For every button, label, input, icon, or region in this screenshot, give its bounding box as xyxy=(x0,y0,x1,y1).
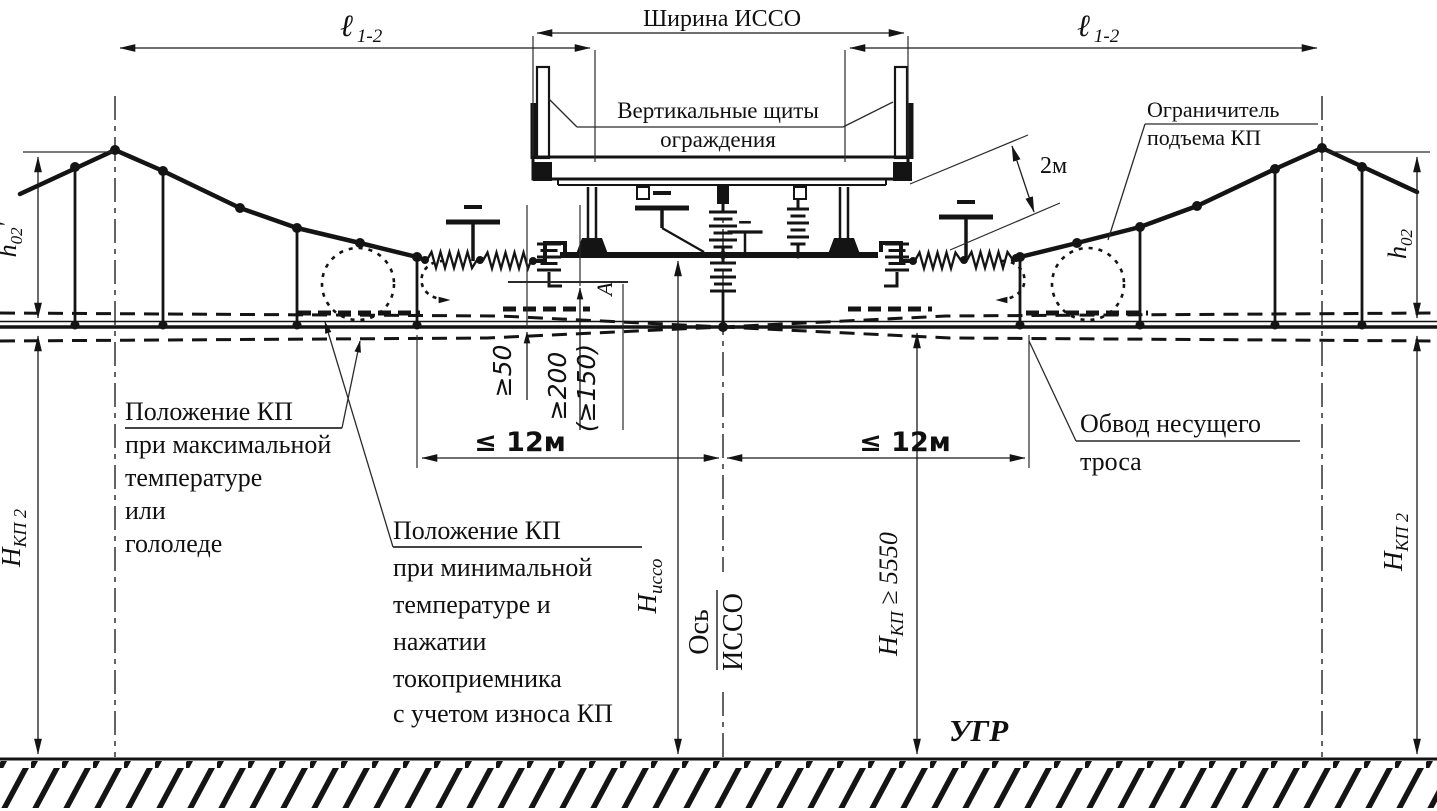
ground-rail-level xyxy=(0,759,1437,808)
text-layer: Ширина ИССО ℓ1-2 ℓ1-2 Вертикальные щиты … xyxy=(0,6,1416,748)
label-12m-left: ≤ 12м xyxy=(474,427,566,458)
svg-text:нажатии: нажатии xyxy=(393,627,487,656)
label-limiter-line2: подъема КП xyxy=(1147,125,1261,150)
deck-right-corner xyxy=(893,162,912,181)
svg-text:гололеде: гололеде xyxy=(125,529,222,558)
label-h02-left: h02' xyxy=(0,222,26,257)
svg-text:троса: троса xyxy=(1080,447,1142,476)
svg-text:с учетом износа КП: с учетом износа КП xyxy=(393,699,613,728)
label-axis-line2: ИССО xyxy=(718,593,749,671)
label-ge50: ≥50 xyxy=(488,345,517,398)
label-shields-line1: Вертикальные щиты xyxy=(617,98,819,123)
coil-right-inner xyxy=(915,253,961,269)
drawing-sheet: Ширина ИССО ℓ1-2 ℓ1-2 Вертикальные щиты … xyxy=(0,0,1437,811)
ground-hatching xyxy=(0,761,1437,808)
node-dots-left xyxy=(70,145,422,330)
svg-text:токоприемника: токоприемника xyxy=(393,664,562,693)
vertical-shield-right xyxy=(895,67,914,159)
label-h-isso: Ниссо xyxy=(632,559,667,615)
diagram-canvas: Ширина ИССО ℓ1-2 ℓ1-2 Вертикальные щиты … xyxy=(0,0,1437,811)
label-ge150: (≥150) xyxy=(572,344,601,432)
label-kp-max: Положение КП при максимальной температур… xyxy=(125,397,331,558)
cable-loop-right xyxy=(1052,248,1124,320)
label-hkp2-left: НКП 2 xyxy=(0,509,30,568)
label-span-right: ℓ1-2 xyxy=(1077,8,1120,47)
earth-icon xyxy=(446,207,500,222)
label-ge200: ≥200 xyxy=(543,352,572,421)
svg-text:температуре и: температуре и xyxy=(393,590,551,619)
node-dots-right xyxy=(1015,143,1367,330)
deck-left-corner xyxy=(533,162,552,181)
label-hkp2-right: НКП 2 xyxy=(1378,513,1412,572)
bracket-hook-left xyxy=(549,272,562,286)
label-ugr: УГР xyxy=(949,713,1009,748)
svg-text:или: или xyxy=(125,496,166,525)
dim-2m xyxy=(1012,146,1034,212)
label-h02-right: h02 xyxy=(1383,229,1416,260)
insulator-stack-left-bracket xyxy=(537,244,561,270)
bridge-deck xyxy=(533,157,908,179)
svg-text:при минимальной: при минимальной xyxy=(393,553,592,582)
catenary-right xyxy=(1013,143,1417,330)
insulator-stack-right-hanger xyxy=(787,209,809,244)
label-h-kp-5550: НКП ≥ 5550 xyxy=(873,532,907,657)
svg-text:Положение КП: Положение КП xyxy=(393,516,561,545)
cable-loop-left xyxy=(322,248,394,320)
svg-text:Положение КП: Положение КП xyxy=(125,397,293,426)
svg-text:Обвод несущего: Обвод несущего xyxy=(1080,409,1261,438)
label-span-left: ℓ1-2 xyxy=(340,8,383,47)
under-deck-frame xyxy=(558,179,886,204)
label-12m-right: ≤ 12м xyxy=(859,427,951,458)
label-width-isso: Ширина ИССО xyxy=(643,6,801,32)
label-section-a: А xyxy=(592,282,617,298)
earth-icon xyxy=(939,202,993,217)
bracket-hook-right xyxy=(884,272,897,286)
label-limiter-line1: Ограничитель xyxy=(1147,97,1279,122)
coil-left-inner xyxy=(483,253,531,269)
contact-wire-group xyxy=(0,309,1437,341)
label-axis-line1: Ось xyxy=(684,609,715,654)
insulator-stack-right-bracket xyxy=(885,244,909,270)
label-bypass: Обвод несущего троса xyxy=(1080,409,1261,476)
label-shields-line2: ограждения xyxy=(660,127,776,152)
label-2m: 2м xyxy=(1040,153,1067,179)
earth-icon xyxy=(635,193,689,208)
coil-left-outer xyxy=(427,252,477,268)
catenary-left xyxy=(20,145,425,330)
svg-text:температуре: температуре xyxy=(125,463,262,492)
svg-text:при максимальной: при максимальной xyxy=(125,430,331,459)
